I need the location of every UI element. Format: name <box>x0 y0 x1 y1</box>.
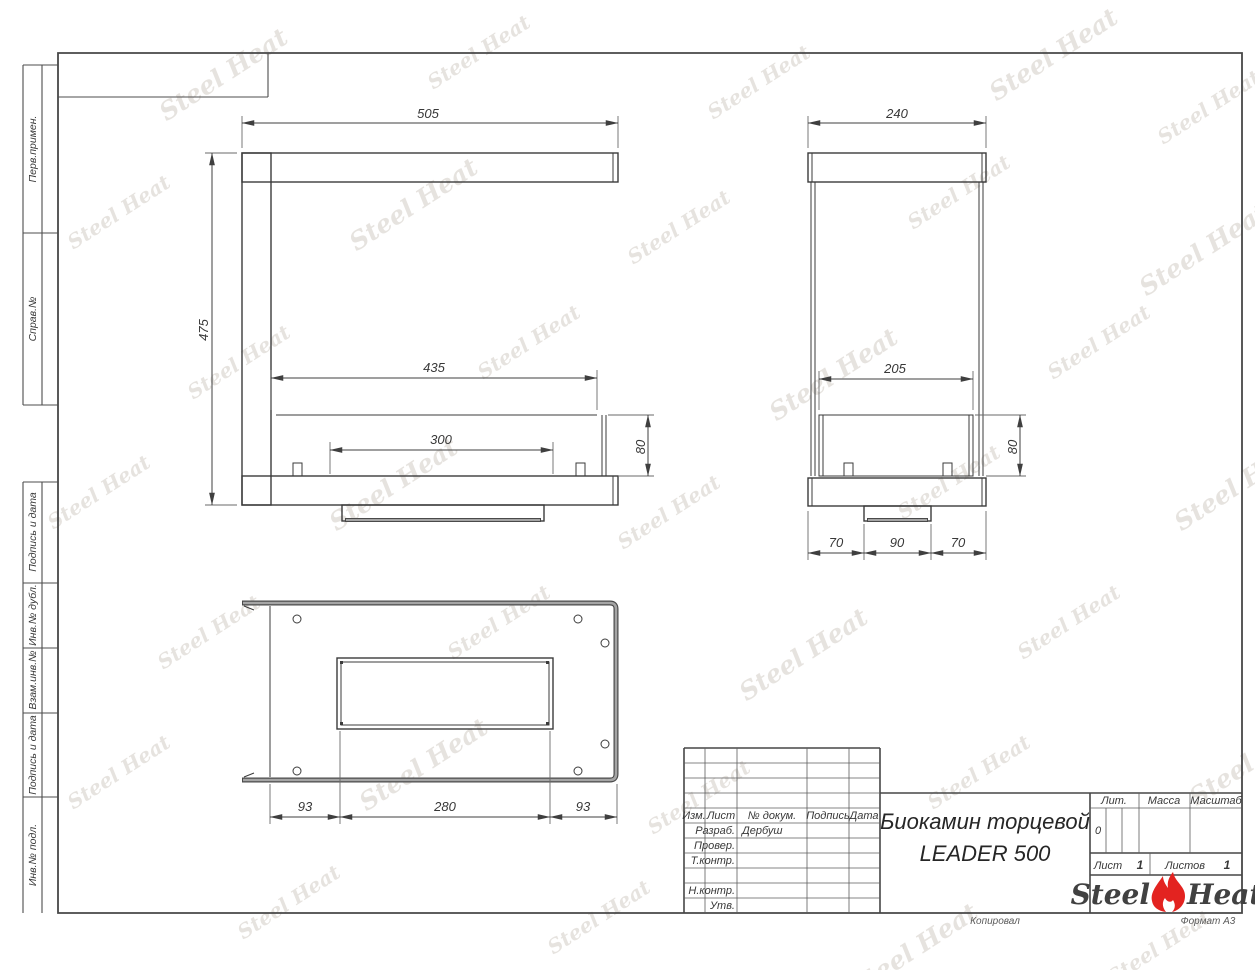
burner-box <box>819 415 973 476</box>
lit-label: Лит. <box>1100 795 1127 807</box>
dim-side-bottom-right: 70 <box>951 535 966 550</box>
margin-label-inv-dubl: Инв.№ дубл. <box>27 584 39 646</box>
burner-clip-right <box>943 463 952 476</box>
dim-top-right: 93 <box>576 799 591 814</box>
dim-side-box-height: 80 <box>1005 439 1020 454</box>
margin-label-perv-primen: Перв.примен. <box>27 116 39 183</box>
top-view: 93 280 93 <box>242 603 617 824</box>
top-left-designation-box <box>58 53 268 97</box>
sheets-label: Листов <box>1164 860 1205 872</box>
logo-heat-text: Heat <box>1186 878 1255 911</box>
burner-clip-left <box>844 463 853 476</box>
front-view: 505 475 435 300 80 <box>196 106 654 521</box>
col-sign: Подпись <box>806 810 850 822</box>
margin-label-sprav-no: Справ.№ <box>27 297 39 342</box>
col-doc: № докум. <box>748 810 796 822</box>
drawing-title-line2: LEADER 500 <box>920 841 1052 866</box>
sheet-number: 1 <box>1137 858 1144 872</box>
developed-label: Разраб. <box>695 825 735 837</box>
checked-label: Провер. <box>694 840 735 852</box>
developed-value: Дербуш <box>740 825 783 837</box>
dim-side-bottom-center: 90 <box>890 535 905 550</box>
tech-control-label: Т.контр. <box>691 855 735 867</box>
dim-side-bottom-left: 70 <box>829 535 844 550</box>
dim-top-center: 280 <box>433 799 456 814</box>
title-block: Изм. Лист № докум. Подпись Дата Разраб. … <box>682 748 1255 927</box>
burner-opening-inner <box>341 662 549 725</box>
dim-side-width: 240 <box>885 106 908 121</box>
drawing-sheet: Steel HeatSteel HeatSteel HeatSteel Heat… <box>0 0 1255 970</box>
scale-label: Масштаб <box>1190 795 1242 807</box>
col-izm: Изм. <box>682 810 705 822</box>
sheet-frame <box>23 53 1242 913</box>
burner-opening-outer <box>337 658 553 729</box>
drawing-title-line1: Биокамин торцевой <box>880 809 1090 834</box>
dim-front-width: 505 <box>417 106 439 121</box>
col-date: Дата <box>847 810 878 822</box>
lit-value: 0 <box>1095 825 1102 837</box>
norm-control-label: Н.контр. <box>688 885 735 897</box>
dim-top-left: 93 <box>298 799 313 814</box>
margin-label-podpis-data-2: Подпись и дата <box>27 715 39 795</box>
format-note: Формат А3 <box>1181 916 1236 927</box>
sheets-total: 1 <box>1224 858 1231 872</box>
col-list: Лист <box>706 810 735 822</box>
flange-hooks <box>244 606 254 777</box>
dim-side-opening: 205 <box>883 361 906 376</box>
margin-label-vzam-inv: Взам.инв.№ <box>27 650 39 709</box>
burner-clip-right <box>576 463 585 476</box>
dim-front-box-height: 80 <box>633 439 648 454</box>
mass-label: Масса <box>1148 795 1181 807</box>
burner-clip-left <box>293 463 302 476</box>
flame-icon <box>1152 872 1185 912</box>
margin-labels: Перв.примен. Справ.№ Подпись и дата Инв.… <box>27 116 39 887</box>
logo-steel-text: Steel <box>1071 878 1150 911</box>
side-view: 240 205 80 70 90 70 <box>808 106 1026 560</box>
margin-label-inv-podl: Инв.№ подл. <box>27 824 39 886</box>
dim-front-burner: 300 <box>430 432 452 447</box>
steel-heat-logo: Steel Heat <box>1071 872 1255 912</box>
drawing-canvas: Перв.примен. Справ.№ Подпись и дата Инв.… <box>0 0 1255 970</box>
copied-note: Копировал <box>970 916 1020 927</box>
margin-label-podpis-data-1: Подпись и дата <box>27 492 39 572</box>
approved-label: Утв. <box>709 900 735 912</box>
sheet-label: Лист <box>1093 860 1122 872</box>
dim-front-height: 475 <box>196 318 211 340</box>
dim-front-opening: 435 <box>423 360 445 375</box>
